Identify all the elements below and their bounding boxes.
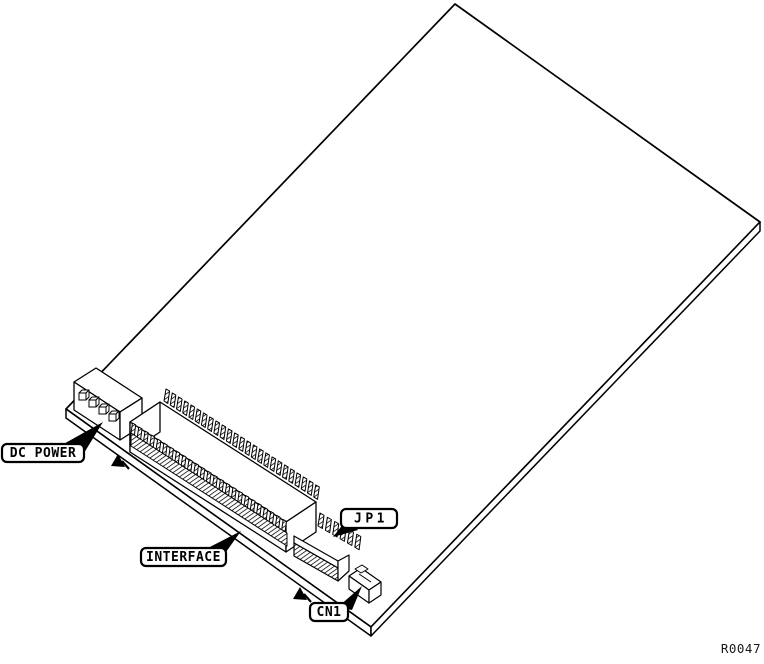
figure-number: R0047 [721,641,761,656]
terminal-front [79,393,86,400]
pcb-isometric-line-drawing: DC POWER INTERFACE JP1 CN1 R0047 [0,0,764,664]
callout-label: JP1 [354,512,388,527]
callout-label: INTERFACE [146,550,221,565]
callout-label: DC POWER [10,446,77,461]
callout-label: CN1 [317,605,342,620]
terminal-front [109,414,116,421]
terminal-front [89,400,96,407]
board-top-face [66,4,760,627]
circuit-board [66,4,760,636]
terminal-front [99,407,106,414]
callout-interface: INTERFACE [141,531,241,566]
